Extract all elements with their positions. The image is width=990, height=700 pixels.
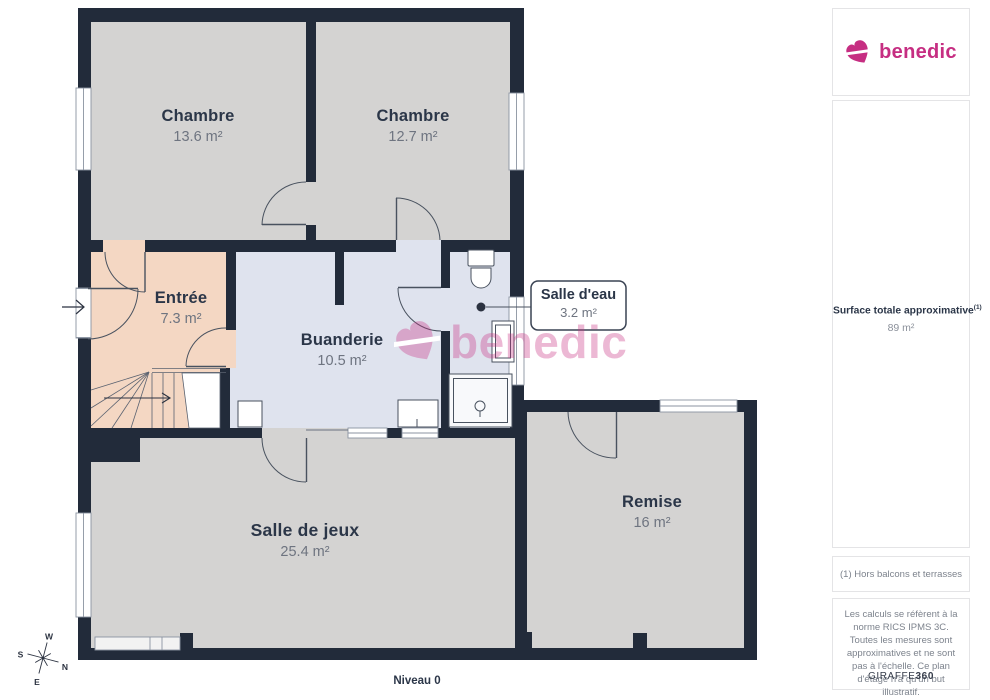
- level-label: Niveau 0: [393, 675, 440, 687]
- sidebar-note-box: (1) Hors balcons et terrasses: [832, 556, 970, 592]
- room-name: Remise: [622, 492, 682, 513]
- room-area: 7.3 m²: [155, 310, 208, 328]
- window: [509, 93, 524, 170]
- window: [660, 400, 737, 412]
- room-area: 16 m²: [622, 514, 682, 532]
- room-area: 12.7 m²: [377, 128, 450, 146]
- callout-dot: [477, 303, 486, 312]
- room-label-chambre-1: Chambre 13.6 m²: [162, 106, 235, 146]
- shower-fixture: [449, 374, 512, 427]
- room-label-entree: Entrée 7.3 m²: [155, 288, 208, 328]
- sidebar-legal-box: Les calculs se réfèrent à la norme RICS …: [832, 598, 970, 690]
- surface-footnote-marker: (1): [974, 304, 982, 311]
- compass-s: S: [18, 650, 24, 660]
- disclaimer-text: Les calculs se réfèrent à la norme RICS …: [833, 599, 969, 699]
- brand-heart-icon: [845, 37, 872, 68]
- room-name: Salle de jeux: [251, 520, 360, 542]
- room-label-chambre-2: Chambre 12.7 m²: [377, 106, 450, 146]
- surface-total-label: Surface totale approximative(1): [833, 304, 969, 316]
- room-name: Buanderie: [301, 330, 384, 351]
- surface-total-value: 89 m²: [833, 322, 969, 334]
- room-label-salle-de-jeux: Salle de jeux 25.4 m²: [251, 520, 360, 561]
- window-sill: [95, 637, 180, 650]
- room-name: Entrée: [155, 288, 208, 309]
- window: [402, 428, 438, 438]
- compass-n: N: [62, 662, 68, 672]
- compass-icon: W S N E: [18, 632, 68, 688]
- cabinet-fixture: [238, 401, 262, 427]
- sink-fixture: [492, 321, 514, 362]
- window: [76, 88, 91, 170]
- room-name: Chambre: [377, 106, 450, 127]
- compass-e: E: [34, 677, 40, 687]
- compass-w: W: [45, 632, 54, 642]
- room-label-buanderie: Buanderie 10.5 m²: [301, 330, 384, 370]
- window: [76, 513, 91, 617]
- room-name: Chambre: [162, 106, 235, 127]
- sidebar-surface-box: Surface totale approximative(1) 89 m²: [832, 100, 970, 548]
- brand-name: benedic: [879, 41, 957, 64]
- window: [348, 428, 387, 438]
- toilet-fixture: [468, 250, 494, 288]
- room-name: Salle d'eau: [541, 287, 616, 304]
- washer-fixture: [398, 400, 438, 427]
- floor-plan-page: W S N E Chambre 13.6 m² Chambre 12.7 m² …: [0, 0, 990, 700]
- room-label-remise: Remise 16 m²: [622, 492, 682, 532]
- entry-opening: [76, 288, 91, 338]
- room-area: 10.5 m²: [301, 352, 384, 370]
- room-area: 25.4 m²: [251, 543, 360, 561]
- giraffe360-credit: GIRAFFE360: [833, 671, 969, 682]
- room-label-salle-eau: Salle d'eau 3.2 m²: [541, 287, 616, 321]
- sidebar-logo-box: benedic: [832, 8, 970, 96]
- footnote-text: (1) Hors balcons et terrasses: [840, 569, 962, 580]
- room-area: 13.6 m²: [162, 128, 235, 146]
- room-area: 3.2 m²: [541, 305, 616, 321]
